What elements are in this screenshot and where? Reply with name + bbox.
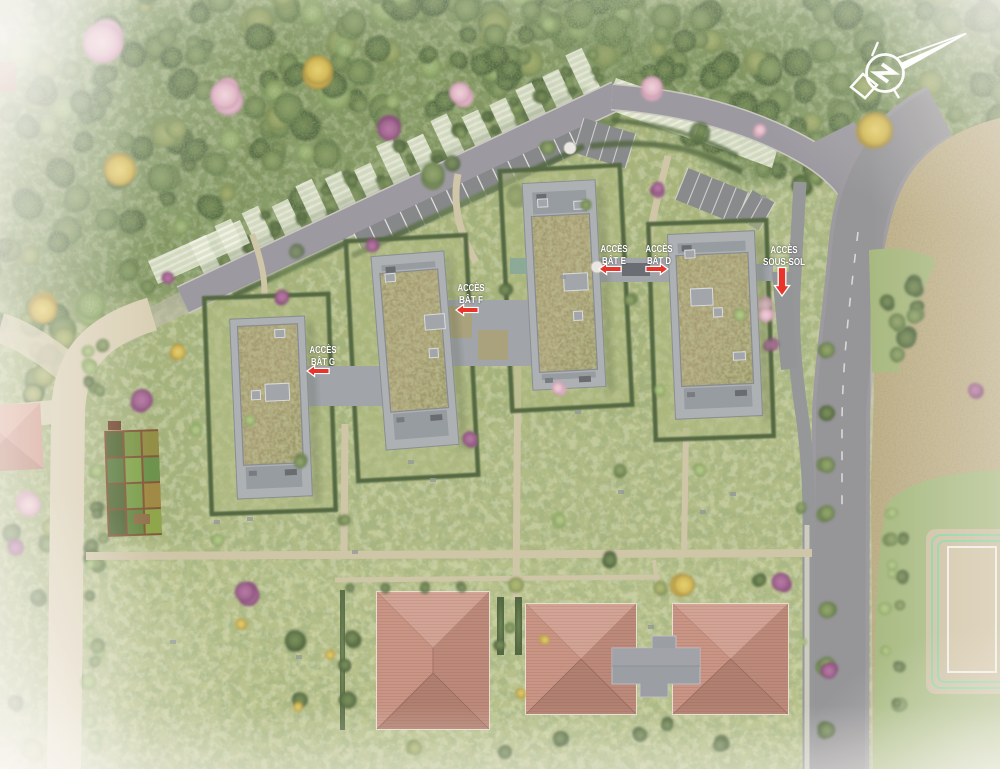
svg-text:ACCÈS: ACCÈS [458,282,485,294]
svg-text:SOUS-SOL: SOUS-SOL [763,257,805,268]
svg-text:ACCÈS: ACCÈS [310,344,337,356]
svg-text:ACCÈS: ACCÈS [646,243,673,255]
svg-text:ACCÈS: ACCÈS [771,244,798,256]
svg-text:BÂT D: BÂT D [647,255,671,267]
svg-text:ACCÈS: ACCÈS [601,243,628,255]
svg-text:BÂT F: BÂT F [459,294,483,306]
